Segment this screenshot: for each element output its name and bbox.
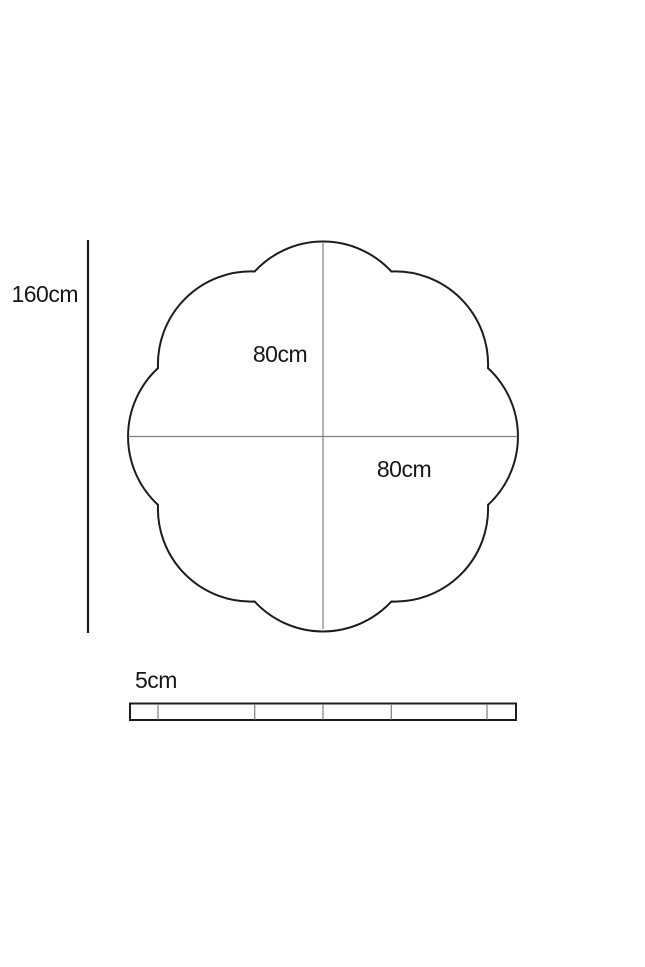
dimension-diagram-canvas: 160cm 80cm 80cm 5cm [0,0,645,967]
dimension-diagram: 160cm 80cm 80cm 5cm [0,0,645,967]
thickness-label: 5cm [135,667,177,693]
side-view-bar [130,704,516,721]
radius-lower-label: 80cm [377,456,431,482]
radius-upper-label: 80cm [253,341,307,367]
height-dimension-label: 160cm [11,281,78,307]
